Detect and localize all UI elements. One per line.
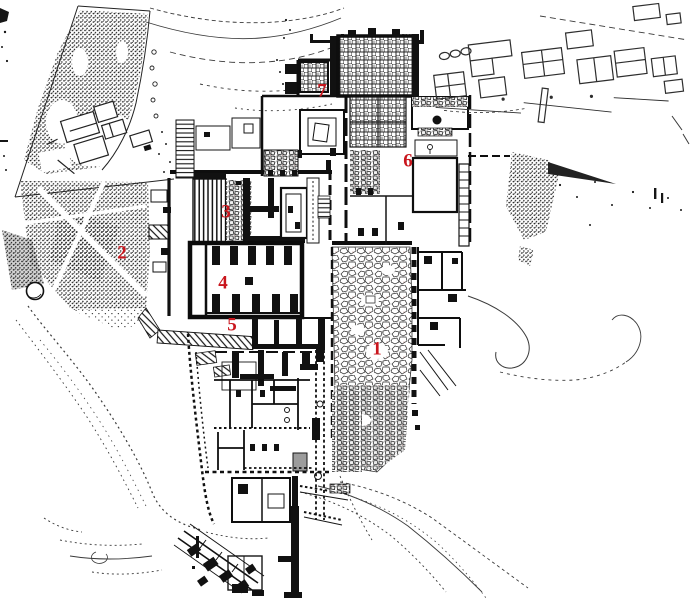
stairs <box>176 120 194 178</box>
court-area-7 <box>262 96 346 176</box>
east-wing <box>412 247 466 430</box>
map-label-2: 2 <box>117 244 127 263</box>
map-label-3: 3 <box>221 203 231 222</box>
stone-terrace <box>332 392 362 472</box>
northwest-hill <box>15 6 174 197</box>
palace-west-wing <box>170 96 346 243</box>
site-plan-image: 1 2 3 4 5 6 7 <box>0 0 692 600</box>
east-knoll <box>506 152 616 266</box>
map-label-5: 5 <box>227 316 237 335</box>
map-label-7: 7 <box>317 82 327 101</box>
pillared-hall-4 <box>190 243 302 317</box>
map-label-4: 4 <box>218 274 228 293</box>
site-plan-drawing <box>0 0 692 600</box>
lower-town <box>174 334 362 598</box>
map-label-6: 6 <box>403 152 413 171</box>
north-wing-6 <box>346 95 510 246</box>
north-house <box>285 28 424 100</box>
map-label-1: 1 <box>372 340 382 359</box>
